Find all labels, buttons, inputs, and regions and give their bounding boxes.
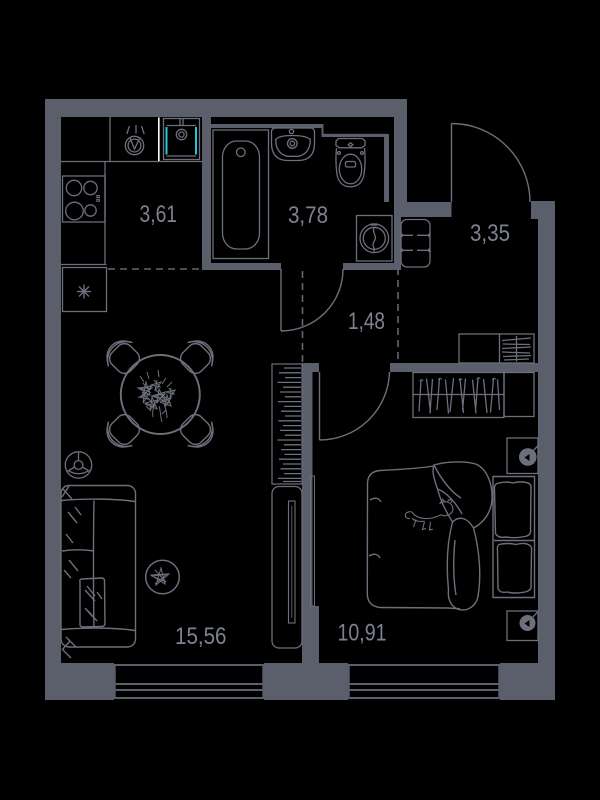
- svg-text:3,35: 3,35: [470, 220, 510, 247]
- svg-text:3,78: 3,78: [288, 202, 328, 229]
- svg-text:1,48: 1,48: [348, 308, 385, 335]
- svg-text:10,91: 10,91: [338, 620, 387, 647]
- svg-text:15,56: 15,56: [175, 623, 227, 650]
- svg-text:3,61: 3,61: [140, 201, 178, 228]
